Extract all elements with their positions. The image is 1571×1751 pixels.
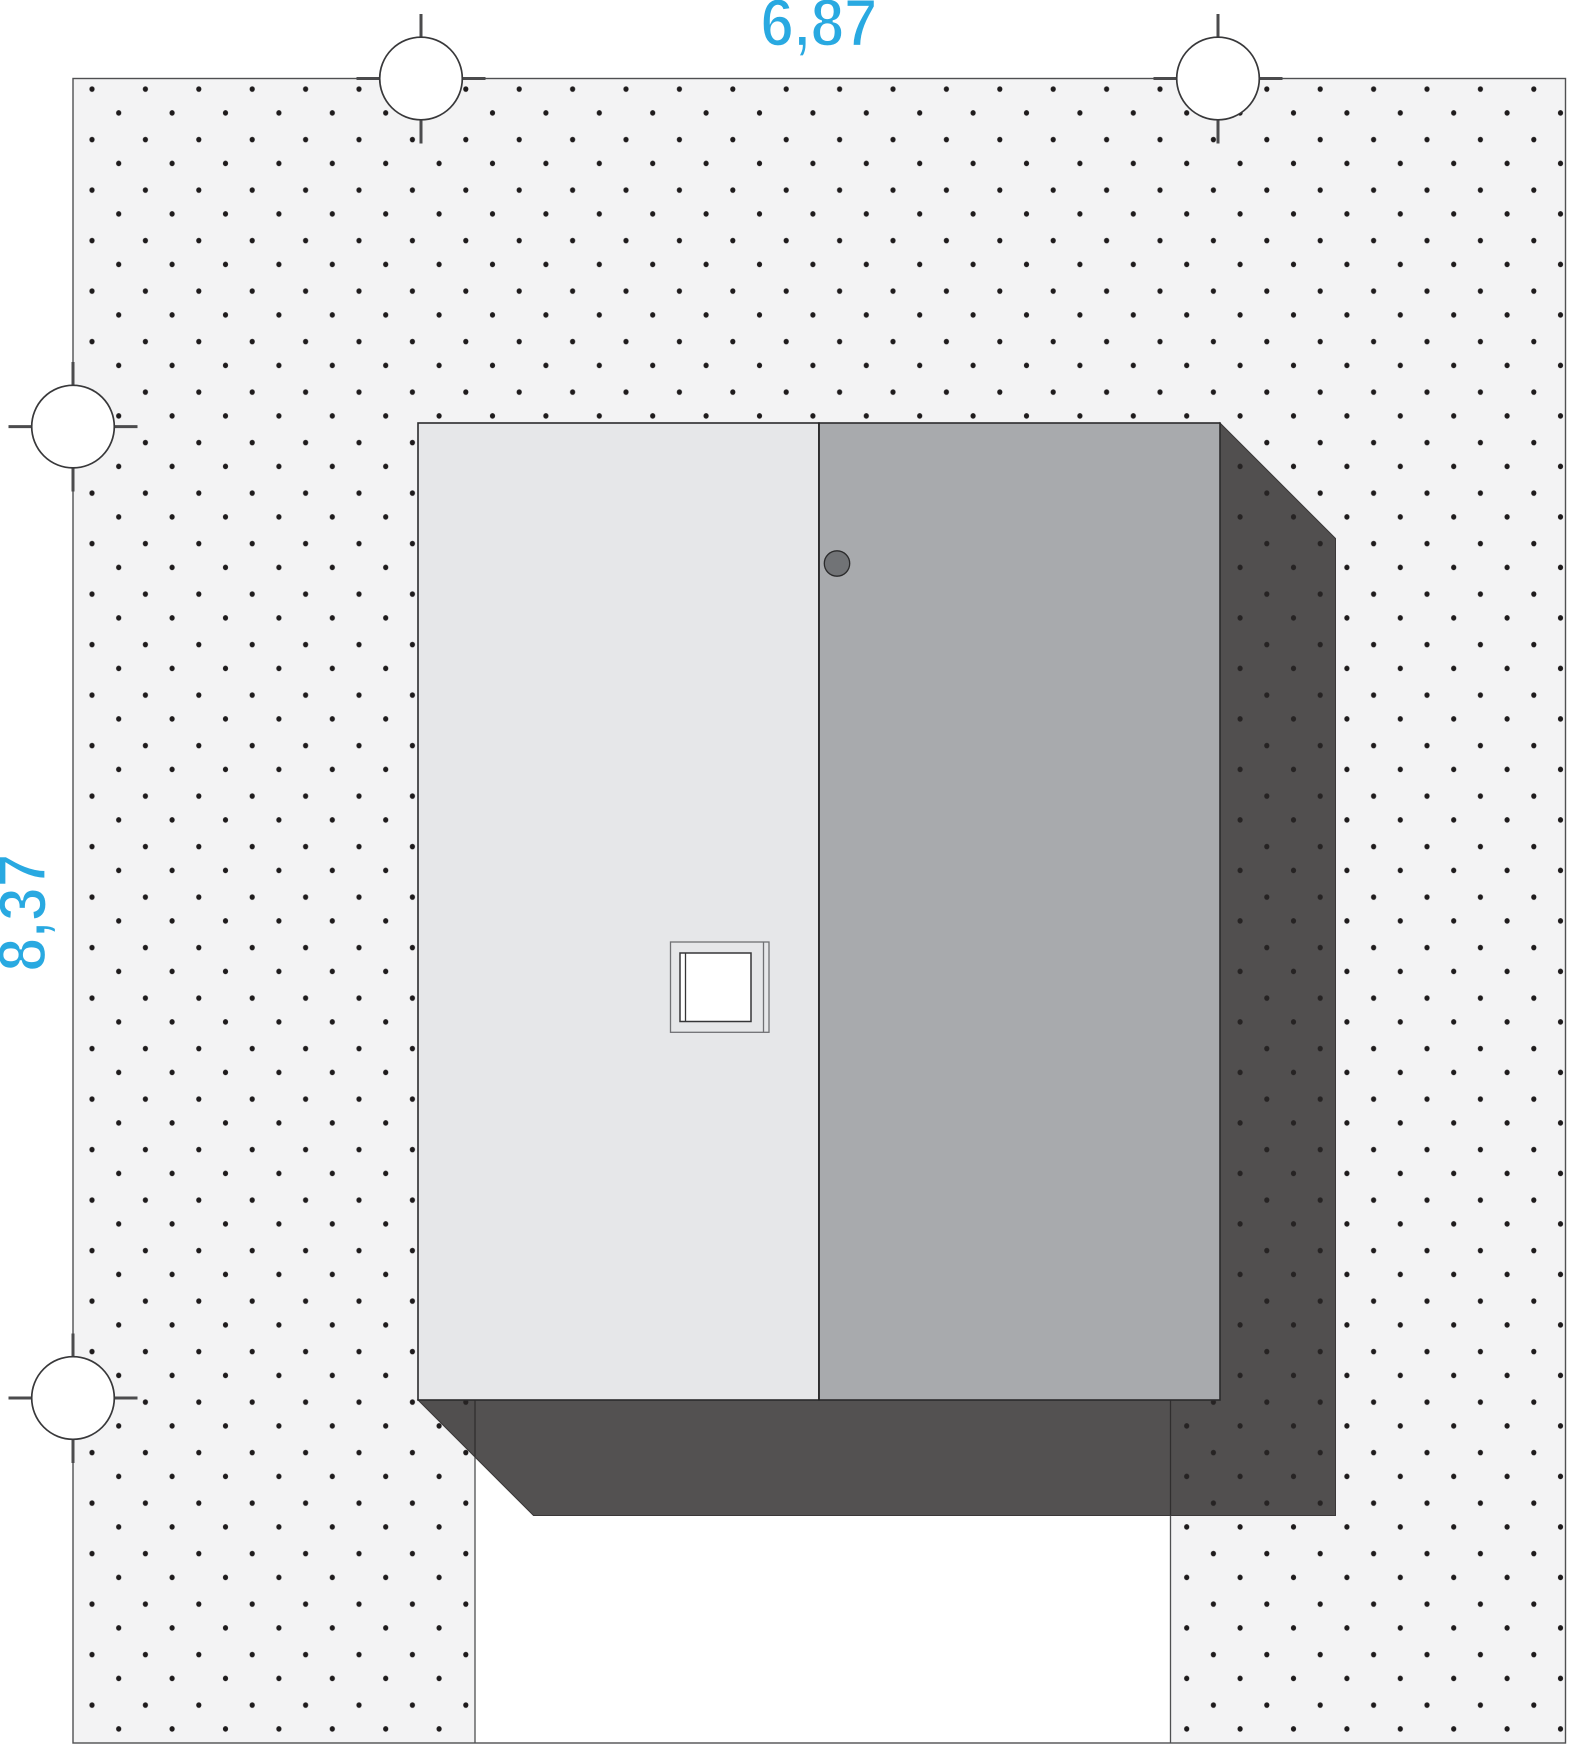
svg-text:8,37: 8,37 (0, 854, 61, 972)
svg-text:6,87: 6,87 (761, 0, 878, 61)
